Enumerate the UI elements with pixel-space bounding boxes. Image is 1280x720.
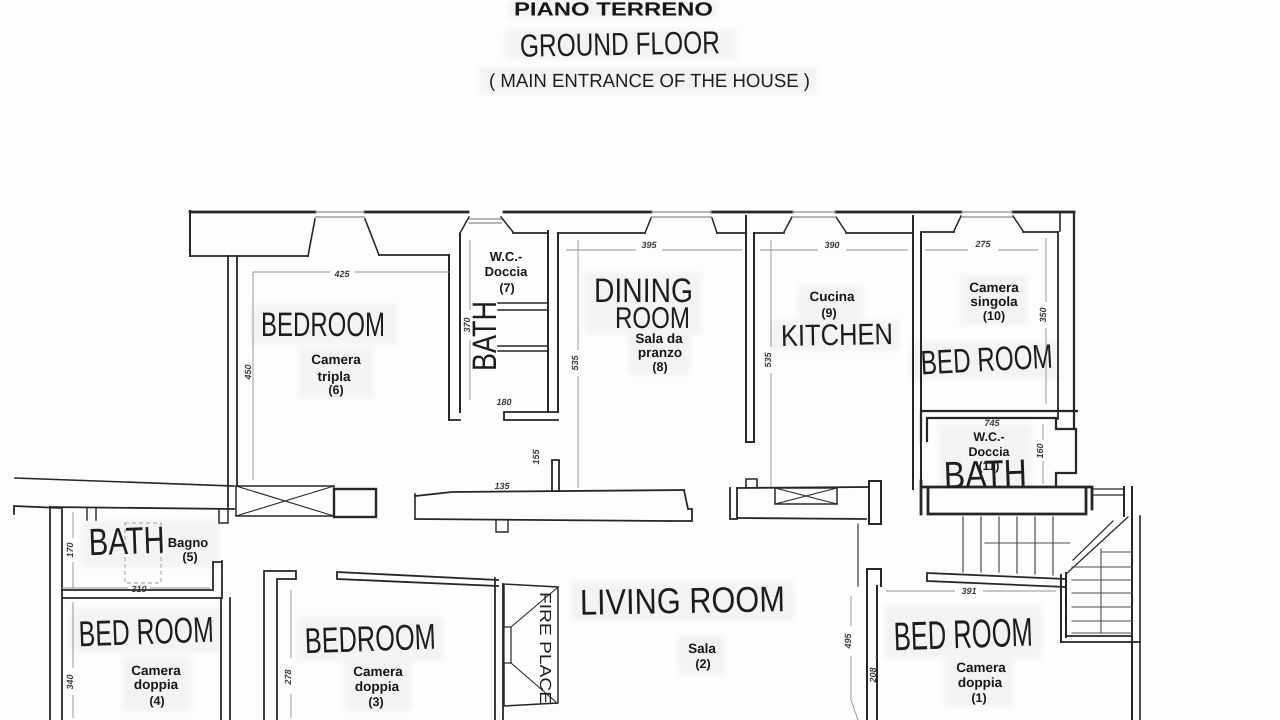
svg-text:170: 170 [65,542,75,557]
svg-text:535: 535 [570,355,580,371]
svg-text:W.C.-: W.C.- [973,430,1004,444]
svg-text:208: 208 [868,667,878,683]
svg-text:BATH: BATH [88,520,165,565]
svg-text:(9): (9) [821,306,836,320]
svg-text:(2): (2) [695,657,710,671]
svg-text:Bagno: Bagno [168,535,209,550]
svg-text:KITCHEN: KITCHEN [781,318,894,353]
svg-text:395: 395 [641,240,657,250]
svg-text:BATH: BATH [466,301,504,371]
svg-text:155: 155 [531,449,541,465]
svg-text:275: 275 [974,239,991,249]
svg-text:BATH: BATH [943,453,1027,498]
svg-text:Camera: Camera [956,660,1006,675]
svg-text:135: 135 [494,481,510,491]
svg-text:745: 745 [984,418,1000,428]
svg-text:(5): (5) [182,550,197,564]
svg-text:(4): (4) [149,694,164,708]
svg-text:BEDROOM: BEDROOM [304,616,436,662]
svg-text:370: 370 [462,317,472,332]
svg-text:390: 390 [824,240,839,250]
svg-text:tripla: tripla [317,369,350,384]
svg-text:350: 350 [1038,307,1048,322]
svg-text:Camera: Camera [353,664,403,679]
svg-text:Sala da: Sala da [635,331,683,346]
svg-text:doppia: doppia [134,677,179,692]
svg-text:doppia: doppia [355,679,400,694]
svg-text:(8): (8) [652,360,667,374]
svg-text:pranzo: pranzo [638,345,682,360]
svg-text:278: 278 [283,669,293,685]
svg-text:BED ROOM: BED ROOM [78,609,214,655]
svg-text:( MAIN ENTRANCE OF THE HOUSE ): ( MAIN ENTRANCE OF THE HOUSE ) [489,71,810,92]
svg-text:FIRE PLACE: FIRE PLACE [536,592,553,704]
svg-text:450: 450 [243,364,253,380]
svg-text:(7): (7) [499,281,514,295]
svg-text:425: 425 [333,269,350,279]
svg-text:340: 340 [65,674,75,689]
svg-text:GROUND FLOOR: GROUND FLOOR [520,24,721,63]
svg-text:doppia: doppia [958,675,1003,690]
svg-text:180: 180 [496,397,511,407]
svg-text:Camera: Camera [969,280,1019,295]
svg-text:singola: singola [970,294,1018,309]
svg-text:Camera: Camera [311,352,361,367]
svg-text:160: 160 [1035,443,1045,458]
svg-text:BED ROOM: BED ROOM [920,338,1054,383]
svg-text:495: 495 [843,633,853,650]
svg-text:BED ROOM: BED ROOM [893,611,1033,660]
svg-text:LIVING ROOM: LIVING ROOM [580,578,786,623]
svg-text:(1): (1) [971,691,986,705]
svg-text:Doccia: Doccia [485,264,528,279]
svg-text:(10): (10) [983,309,1005,323]
svg-text:Sala: Sala [688,641,716,656]
svg-text:(3): (3) [368,695,383,709]
svg-text:Camera: Camera [131,663,181,678]
svg-text:Cucina: Cucina [809,289,855,304]
svg-text:535: 535 [763,352,773,368]
svg-text:391: 391 [961,586,976,596]
svg-text:PIANO TERRENO: PIANO TERRENO [514,0,713,21]
svg-text:BEDROOM: BEDROOM [261,306,385,344]
svg-text:310: 310 [131,584,146,594]
svg-text:(6): (6) [328,383,343,397]
svg-text:W.C.-: W.C.- [490,249,523,264]
